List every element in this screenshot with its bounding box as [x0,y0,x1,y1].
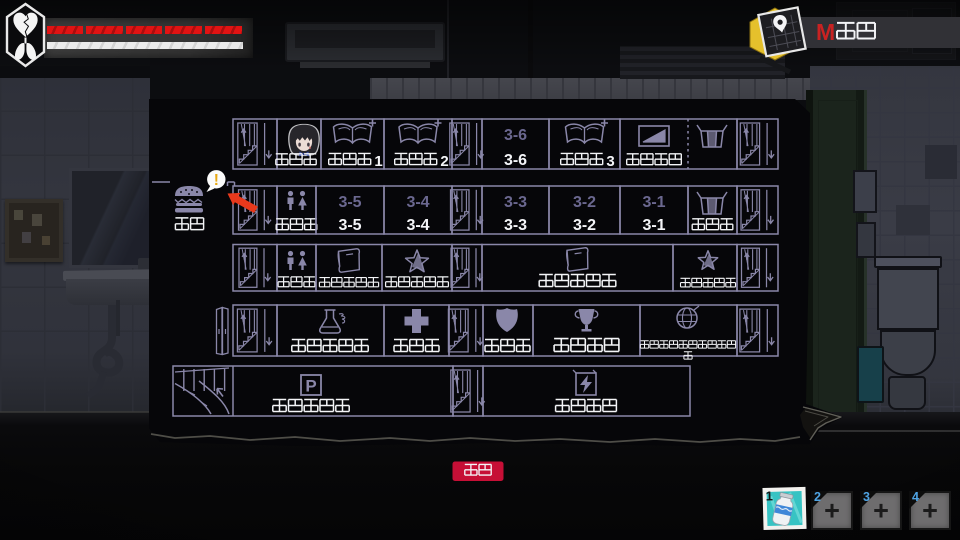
svg-text:P: P [305,377,316,396]
svg-text:3-1: 3-1 [642,194,665,211]
svg-text:3-3: 3-3 [504,217,527,234]
svg-text:3-4: 3-4 [406,194,429,211]
svg-text:3-5: 3-5 [338,217,361,234]
svg-text:2: 2 [440,153,448,170]
svg-text:3-4: 3-4 [406,217,429,234]
svg-text:3: 3 [606,153,614,170]
svg-text:M: M [816,19,835,45]
svg-text:3-2: 3-2 [573,194,596,211]
svg-text:3-1: 3-1 [642,217,665,234]
svg-text:1: 1 [765,488,773,503]
svg-text:3-6: 3-6 [504,152,527,169]
svg-text:3-3: 3-3 [504,194,527,211]
svg-text:3-5: 3-5 [338,194,361,211]
svg-text:1: 1 [374,153,382,170]
svg-text:3-2: 3-2 [573,217,596,234]
svg-text:3-6: 3-6 [504,127,527,144]
svg-text:!: ! [214,172,219,189]
